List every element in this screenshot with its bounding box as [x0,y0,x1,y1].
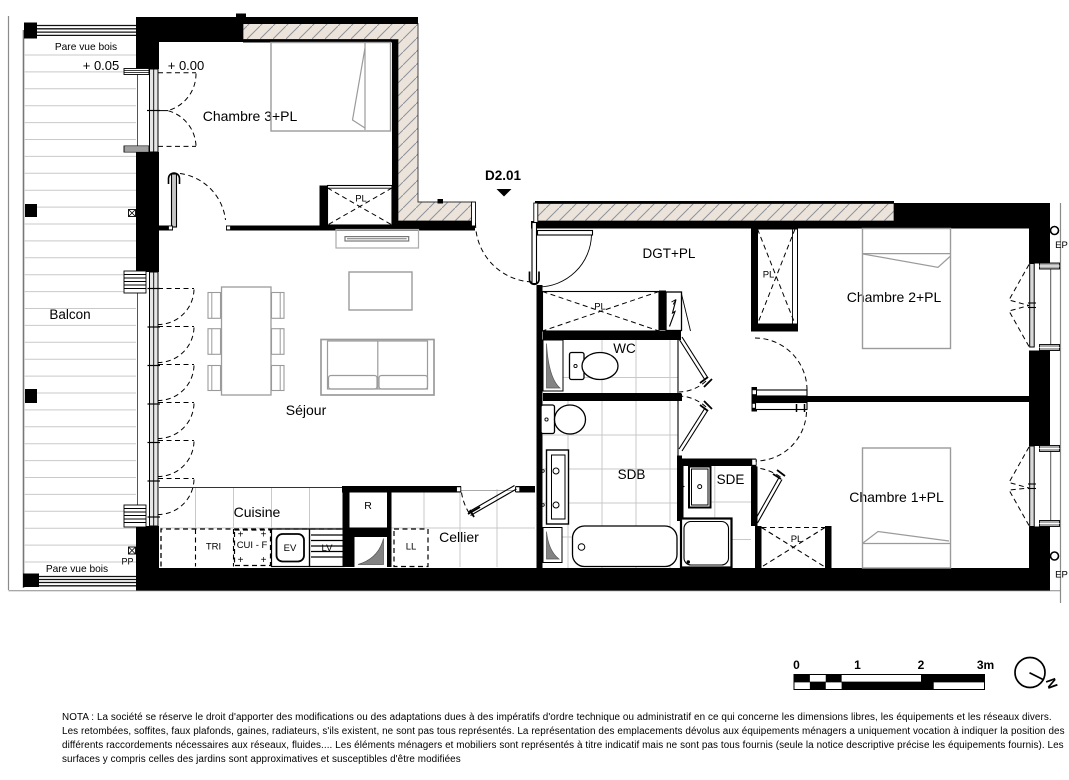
svg-text:PP: PP [121,557,133,567]
svg-text:EP: EP [1055,240,1068,251]
svg-text:+ 0.05: + 0.05 [83,58,120,73]
svg-text:SDE: SDE [717,472,745,487]
svg-text:PL: PL [355,194,367,205]
svg-text:LV: LV [322,543,334,554]
svg-text:Cellier: Cellier [439,529,479,545]
svg-text:Cuisine: Cuisine [234,504,281,520]
svg-text:+ 0.00: + 0.00 [168,58,205,73]
svg-text:+: + [238,555,244,566]
svg-text:TRI: TRI [206,542,221,553]
svg-text:+: + [238,530,244,541]
svg-text:PL: PL [594,302,606,313]
svg-text:DGT+PL: DGT+PL [643,246,696,261]
svg-text:PL: PL [791,534,803,545]
svg-text:PL: PL [763,270,775,281]
svg-text:Chambre 3+PL: Chambre 3+PL [203,108,298,124]
svg-text:SDB: SDB [618,467,646,482]
svg-text:2: 2 [918,658,925,672]
svg-text:Pare vue bois: Pare vue bois [46,564,108,575]
svg-text:3m: 3m [977,658,994,672]
svg-text:LL: LL [406,542,417,553]
svg-text:+: + [261,555,267,566]
svg-text:R: R [364,500,372,512]
svg-text:1: 1 [854,658,861,672]
svg-text:EV: EV [284,543,297,554]
svg-text:différents raccordements néces: différents raccordements nécessaires aux… [62,740,1064,751]
svg-text:NOTA : La société se réserve l: NOTA : La société se réserve le droit d'… [62,712,1052,723]
svg-text:+: + [261,530,267,541]
svg-text:0: 0 [793,658,800,672]
svg-text:WC: WC [613,341,636,356]
svg-text:CUI - F: CUI - F [237,540,268,551]
svg-text:D2.01: D2.01 [485,168,522,183]
svg-text:Séjour: Séjour [286,402,327,418]
svg-text:Balcon: Balcon [49,307,90,322]
svg-text:Les retombées, soffites, faux: Les retombées, soffites, faux plafonds, … [62,726,1065,737]
svg-text:EP: EP [1055,570,1068,581]
svg-text:Pare vue bois: Pare vue bois [55,42,117,53]
svg-text:Chambre 2+PL: Chambre 2+PL [847,289,942,305]
svg-text:surfaces y compris celles des: surfaces y compris celles des jardins so… [62,754,461,765]
svg-text:Chambre 1+PL: Chambre 1+PL [849,489,944,505]
